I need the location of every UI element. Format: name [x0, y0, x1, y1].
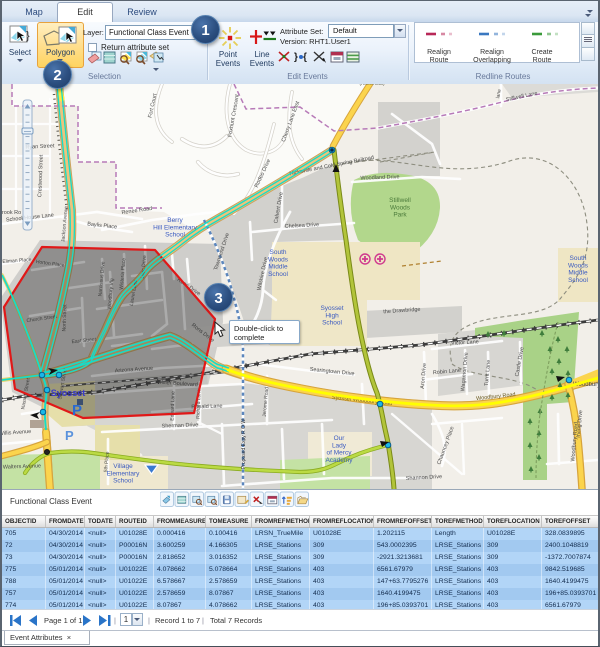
- svg-text:Hill Elementary: Hill Elementary: [153, 224, 197, 231]
- svg-text:School: School: [268, 271, 288, 278]
- svg-text:Crestwood Street: Crestwood Street: [37, 154, 44, 197]
- svg-text:Proposed Expy R O W: Proposed Expy R O W: [241, 419, 247, 470]
- svg-text:Lady: Lady: [332, 442, 347, 449]
- svg-text:Woods: Woods: [568, 262, 589, 269]
- svg-text:Woods: Woods: [268, 256, 289, 263]
- svg-text:Willis Avenue: Willis Avenue: [2, 429, 31, 437]
- svg-text:Our: Our: [334, 435, 346, 442]
- svg-text:brook Ro: brook Ro: [2, 210, 21, 216]
- svg-text:Woods: Woods: [390, 204, 411, 211]
- svg-text:{: {: [303, 52, 307, 63]
- svg-text:}: }: [294, 52, 298, 63]
- svg-text:Searingtown Drive: Searingtown Drive: [309, 367, 354, 378]
- svg-text:(historical): (historical): [359, 84, 385, 87]
- svg-text:Stillwell: Stillwell: [389, 197, 411, 204]
- svg-text:P: P: [72, 402, 82, 419]
- svg-text:Sherman Drive: Sherman Drive: [162, 422, 199, 429]
- svg-text:Village: Village: [113, 463, 133, 470]
- svg-text:High: High: [325, 312, 339, 319]
- svg-text:Syosset: Syosset: [320, 305, 343, 312]
- svg-text:Middle: Middle: [268, 264, 288, 271]
- svg-text:School: School: [322, 320, 342, 327]
- svg-text:of Mercy: of Mercy: [327, 450, 353, 457]
- svg-text:School: School: [113, 478, 133, 485]
- svg-text:South: South: [570, 255, 587, 262]
- svg-text:Aron Drive: Aron Drive: [420, 363, 428, 389]
- svg-text:School: School: [165, 232, 185, 239]
- svg-text:South: South: [270, 249, 287, 256]
- svg-text:Elementary: Elementary: [107, 470, 141, 477]
- svg-text:Academy: Academy: [325, 457, 353, 464]
- svg-text:Shannon Drive: Shannon Drive: [406, 474, 443, 482]
- svg-text:}: }: [26, 30, 30, 42]
- svg-text:School: School: [568, 277, 588, 284]
- svg-text:Berry: Berry: [167, 217, 183, 224]
- svg-text:Syosset: Syosset: [51, 388, 86, 398]
- svg-text:Middle: Middle: [568, 270, 588, 277]
- svg-text:P: P: [65, 428, 74, 443]
- svg-text:Park: Park: [393, 212, 407, 219]
